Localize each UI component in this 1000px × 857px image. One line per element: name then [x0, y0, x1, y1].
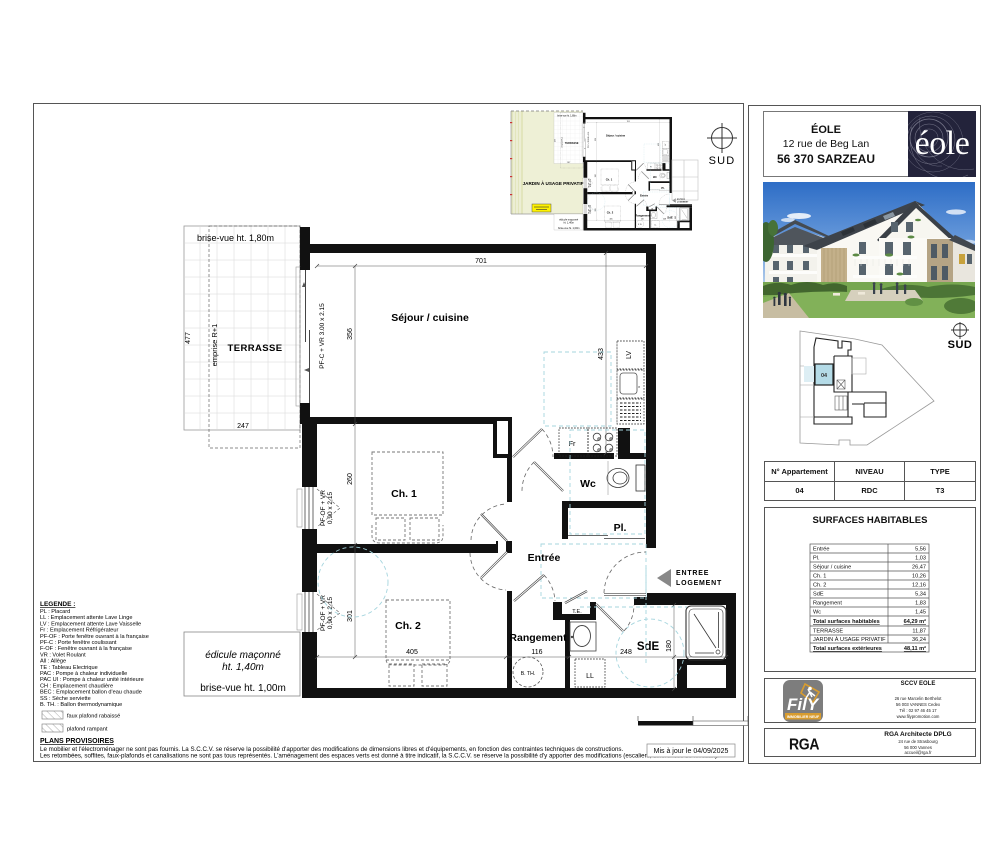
svg-text:Wc: Wc: [580, 478, 596, 490]
svg-text:CH : Emplacement chaudière: CH : Emplacement chaudière: [40, 683, 113, 689]
svg-text:B. TH.: B. TH.: [521, 671, 536, 677]
svg-text:PF-C : Porte fenêtre coulissan: PF-C : Porte fenêtre coulissant: [40, 640, 117, 646]
svg-text:PF-OF + VR: PF-OF + VR: [320, 595, 327, 631]
svg-text:TERRASSE: TERRASSE: [813, 629, 843, 635]
svg-text:1,03: 1,03: [915, 556, 926, 562]
svg-text:Entrée: Entrée: [528, 552, 561, 564]
svg-text:Séjour / cuisine: Séjour / cuisine: [813, 565, 851, 571]
svg-text:180: 180: [666, 640, 673, 652]
svg-text:LEGENDE :: LEGENDE :: [40, 601, 75, 608]
svg-text:1,45: 1,45: [915, 610, 926, 616]
svg-text:04: 04: [821, 373, 828, 379]
svg-text:36,24: 36,24: [912, 637, 926, 643]
svg-text:All : Allège: All : Allège: [40, 659, 66, 665]
svg-text:Ch. 1: Ch. 1: [391, 488, 417, 500]
svg-text:brise-vue ht. 1,00m: brise-vue ht. 1,00m: [200, 683, 286, 694]
svg-text:emprise R+1: emprise R+1: [210, 324, 219, 367]
svg-text:B. TH. : Ballon thermodynamiqu: B. TH. : Ballon thermodynamique: [40, 702, 122, 708]
svg-text:5,34: 5,34: [915, 592, 926, 598]
svg-text:LL: LL: [586, 673, 594, 680]
svg-text:701: 701: [475, 258, 487, 265]
svg-text:SUD: SUD: [709, 155, 736, 167]
svg-text:12,16: 12,16: [912, 583, 926, 589]
svg-text:116: 116: [531, 649, 542, 656]
svg-text:Rangement: Rangement: [813, 601, 842, 607]
svg-text:ht. 1,40m: ht. 1,40m: [222, 662, 264, 673]
svg-text:247: 247: [237, 423, 249, 430]
svg-text:IMMOBILIER NEUF: IMMOBILIER NEUF: [787, 715, 820, 719]
svg-text:u: u: [636, 386, 641, 388]
svg-text:Pl.: Pl.: [614, 522, 627, 534]
svg-text:64,29 m²: 64,29 m²: [904, 618, 927, 625]
svg-text:brise-vue ht. 1,80m: brise-vue ht. 1,80m: [197, 233, 274, 243]
svg-text:LL : Emplacement attente Lave: LL : Emplacement attente Lave Linge: [40, 615, 132, 621]
svg-text:433: 433: [598, 348, 605, 360]
svg-text:Séjour / cuisine: Séjour / cuisine: [391, 312, 469, 324]
svg-text:Total surfaces habitables: Total surfaces habitables: [813, 619, 880, 625]
svg-text:26,47: 26,47: [912, 565, 926, 571]
svg-text:405: 405: [406, 649, 418, 656]
svg-text:248: 248: [620, 649, 632, 656]
svg-text:PF-OF : Porte fenêtre ouvrant: PF-OF : Porte fenêtre ouvrant à la franç…: [40, 634, 149, 640]
svg-text:plafond rampant: plafond rampant: [67, 727, 108, 733]
svg-text:Les retombées, soffites, faux-: Les retombées, soffites, faux-plafonds e…: [40, 753, 719, 760]
svg-text:F-OF : Fenêtre ouvrant à la fr: F-OF : Fenêtre ouvrant à la française: [40, 646, 132, 652]
svg-text:Ch. 2: Ch. 2: [395, 620, 421, 632]
svg-text:PF-C + VR 3.00 x 2.15: PF-C + VR 3.00 x 2.15: [319, 303, 326, 369]
svg-text:TERRASSE: TERRASSE: [228, 343, 283, 354]
svg-text:ENTREE: ENTREE: [676, 570, 709, 577]
svg-text:5,56: 5,56: [915, 547, 926, 553]
svg-text:JARDIN À USAGE PRIVATIF: JARDIN À USAGE PRIVATIF: [523, 180, 584, 186]
svg-text:477: 477: [185, 332, 192, 344]
svg-text:VR : Volet Roulant: VR : Volet Roulant: [40, 652, 86, 658]
svg-text:Pl.: Pl.: [813, 556, 820, 562]
svg-text:T.E.: T.E.: [572, 609, 582, 615]
svg-text:PAC UI : Pompe à chaleur unité: PAC UI : Pompe à chaleur unité intérieur…: [40, 677, 144, 683]
svg-text:PL : Placard: PL : Placard: [40, 609, 70, 615]
svg-text:FilY: FilY: [787, 695, 820, 714]
svg-text:Ch. 1: Ch. 1: [813, 574, 826, 580]
svg-text:0,90 x 2,15: 0,90 x 2,15: [327, 597, 334, 630]
svg-text:édicule maçonné: édicule maçonné: [205, 650, 281, 661]
svg-text:Entrée: Entrée: [813, 547, 829, 553]
svg-text:Mis à jour le 04/09/2025: Mis à jour le 04/09/2025: [654, 748, 729, 755]
svg-text:PLANS PROVISOIRES: PLANS PROVISOIRES: [40, 738, 114, 745]
svg-text:PF-OF + VR: PF-OF + VR: [320, 490, 327, 526]
svg-text:éole: éole: [915, 125, 970, 162]
svg-text:SdE: SdE: [637, 641, 660, 653]
svg-text:SUD: SUD: [948, 339, 973, 351]
svg-text:LV : Emplacement attente Lave: LV : Emplacement attente Lave Vaisselle: [40, 621, 141, 627]
svg-text:TE : Tableau Electrique: TE : Tableau Electrique: [40, 665, 98, 671]
svg-text:LOGEMENT: LOGEMENT: [676, 580, 722, 587]
svg-text:10,26: 10,26: [912, 574, 926, 580]
svg-text:SdE: SdE: [813, 592, 824, 598]
svg-text:Fr : Emplacement Réfrigérateur: Fr : Emplacement Réfrigérateur: [40, 628, 118, 634]
svg-text:LV: LV: [626, 351, 633, 359]
svg-text:Wc: Wc: [813, 610, 821, 616]
svg-text:Ch. 2: Ch. 2: [813, 583, 826, 589]
svg-text:BEC : Emplacement ballon d'eau: BEC : Emplacement ballon d'eau chaude: [40, 690, 142, 696]
svg-text:11,87: 11,87: [912, 629, 926, 635]
svg-text:SS : Sèche serviette: SS : Sèche serviette: [40, 696, 91, 702]
svg-text:JARDIN À USAGE PRIVATIF: JARDIN À USAGE PRIVATIF: [813, 636, 886, 643]
svg-text:1,83: 1,83: [915, 601, 926, 607]
svg-text:48,11 m²: 48,11 m²: [904, 645, 926, 652]
svg-text:Rangement: Rangement: [509, 632, 567, 644]
svg-text:PAC : Pompe à chaleur individu: PAC : Pompe à chaleur individuelle: [40, 671, 127, 677]
svg-text:301: 301: [347, 610, 354, 622]
svg-text:0,90 x 2,15: 0,90 x 2,15: [327, 492, 334, 525]
svg-text:260: 260: [347, 473, 354, 485]
svg-text:faux plafond rabaissé: faux plafond rabaissé: [67, 714, 120, 720]
svg-text:Total surfaces extérieures: Total surfaces extérieures: [813, 646, 882, 652]
svg-text:356: 356: [347, 328, 354, 340]
